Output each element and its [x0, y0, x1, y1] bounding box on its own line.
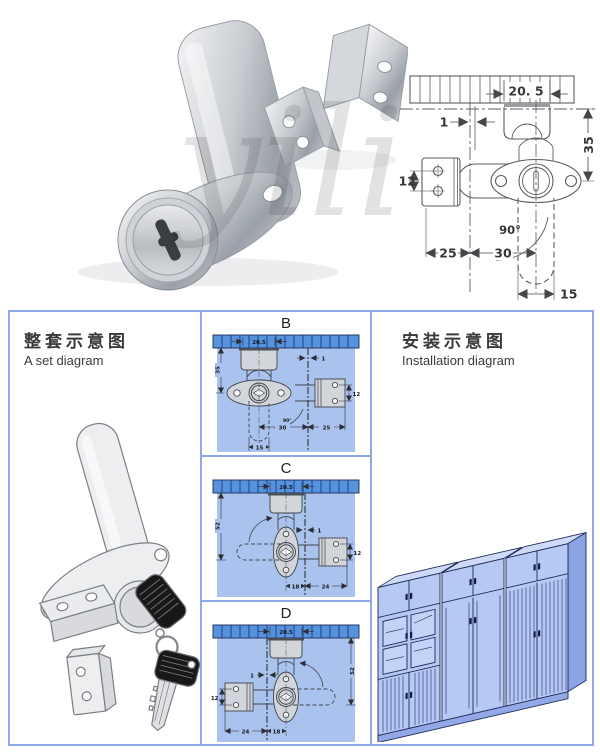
set-bracket-small — [66, 645, 117, 715]
dim-tongue: 15 — [560, 287, 577, 301]
dimension-drawing: 20. 5 1 12 35 90° 25 30 15 — [398, 50, 598, 300]
d-dim-outer: 24 — [242, 730, 250, 736]
d-dim-gap: 1 — [250, 674, 254, 680]
d-dim-panel-width: 20.5 — [279, 630, 293, 636]
lock-body-outline — [458, 103, 581, 284]
cabinet-unit-2 — [442, 558, 504, 720]
install-panel-titles: 安装示意图 Installation diagram — [372, 312, 592, 368]
lock-set-drawing — [10, 407, 200, 742]
dim-panel-width: 20. 5 — [508, 84, 543, 99]
c-dim-height: 52 — [216, 522, 222, 530]
set-panel-titles: 整套示意图 A set diagram — [10, 312, 200, 368]
dim-angle: 90° — [499, 223, 521, 237]
b-dim-gap: 1 — [322, 357, 326, 363]
b-dim-panel-width: 20.5 — [252, 340, 266, 346]
c-dim-panel-width: 20.5 — [279, 485, 293, 491]
dim-offset-right: 30 — [494, 246, 512, 261]
d-dim-bracket-holes: 12 — [211, 696, 219, 702]
install-title-en: Installation diagram — [402, 353, 592, 368]
b-dim-inner: 30 — [279, 426, 287, 432]
variant-c-panel: C — [200, 455, 372, 602]
d-dim-inner: 18 — [273, 730, 281, 736]
cabinet-unit-1 — [378, 573, 440, 735]
dim-bracket-holes: 12 — [399, 174, 416, 189]
set-title-en: A set diagram — [24, 353, 200, 368]
product-photo: yili — [8, 0, 408, 300]
spare-key — [141, 649, 200, 737]
cabinet-unit-3 — [506, 544, 568, 706]
c-dim-inner: 18 — [292, 585, 300, 591]
set-diagram-panel: 整套示意图 A set diagram — [8, 310, 202, 746]
variant-b-label: B — [202, 315, 370, 332]
variant-d-drawing: 20.5 1 52 12 24 18 — [211, 623, 361, 745]
dim-offset-left: 25 — [439, 246, 456, 261]
b-dim-bracket-holes: 12 — [353, 392, 361, 398]
installation-panel: 安装示意图 Installation diagram — [370, 310, 594, 746]
cabinet-side-face — [568, 533, 586, 692]
panel-cross-section — [400, 76, 596, 109]
c-dim-outer: 24 — [322, 585, 330, 591]
b-dim-angle: 90° — [283, 418, 292, 424]
variant-b-drawing: 20.5 1 35 12 30 25 15 90° — [211, 333, 361, 455]
dim-height: 35 — [581, 136, 596, 153]
b-dim-tongue: 15 — [256, 446, 264, 452]
watermark-text: yili — [170, 77, 405, 251]
variant-c-drawing: 20.5 1 52 12 18 24 — [211, 478, 361, 600]
set-title-cn: 整套示意图 — [24, 327, 200, 352]
mount-bracket-outline — [422, 158, 460, 206]
dim-gap: 1 — [440, 115, 449, 130]
variant-d-panel: D — [200, 600, 372, 746]
b-dim-outer: 25 — [323, 426, 331, 432]
d-dim-height: 52 — [350, 667, 356, 675]
variant-d-label: D — [202, 605, 370, 622]
install-title-cn: 安装示意图 — [402, 327, 592, 352]
b-dim-height: 35 — [216, 366, 222, 374]
c-dim-gap: 1 — [318, 529, 322, 535]
c-dim-bracket-holes: 12 — [354, 551, 362, 557]
variant-b-panel: B — [200, 310, 372, 457]
variant-c-label: C — [202, 460, 370, 477]
cabinets-illustration — [373, 430, 591, 742]
